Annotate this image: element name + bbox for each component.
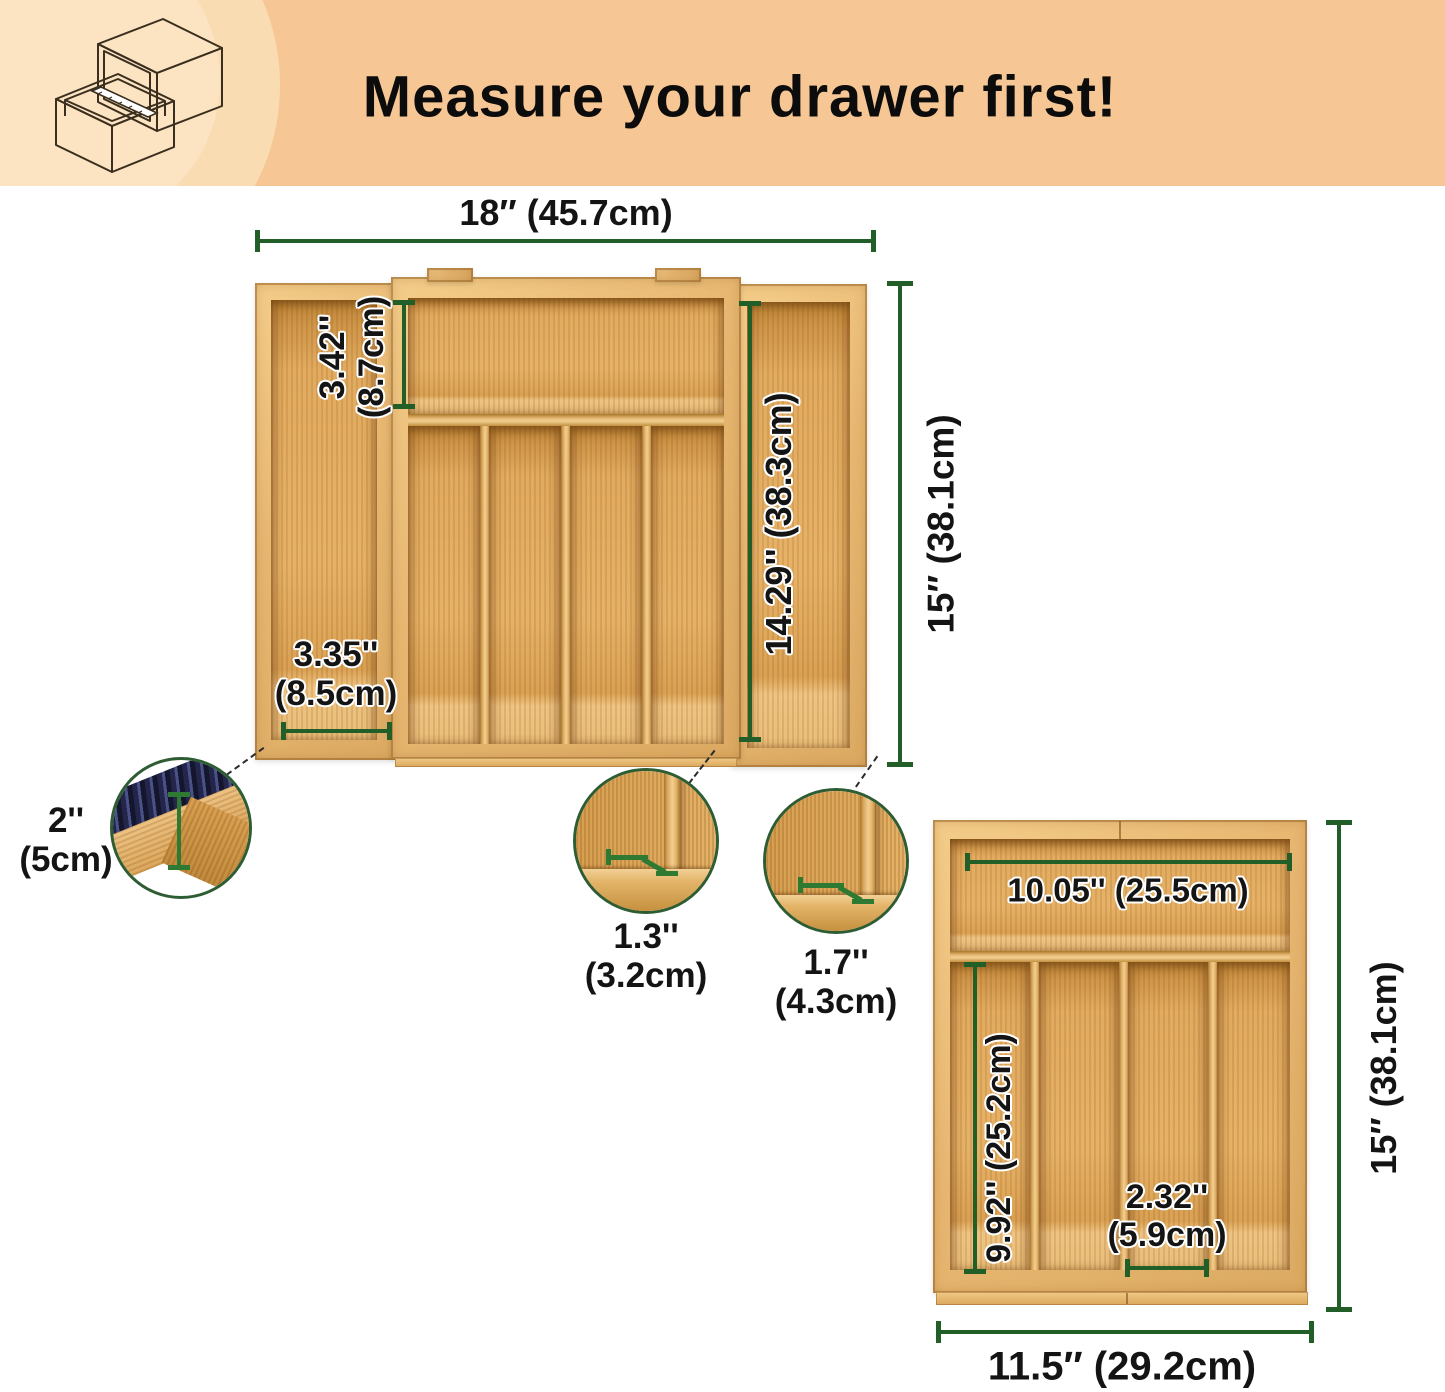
- large-base-ledge: [395, 758, 737, 767]
- small-bottom-width-label: 11.5″ (29.2cm): [988, 1345, 1256, 1390]
- open-drawer-icon: [36, 4, 251, 184]
- cm-value: (5cm): [19, 840, 112, 879]
- inch-value: 2.32'': [1107, 1178, 1226, 1216]
- small-column-width-label: 2.32'' (5.9cm): [1107, 1178, 1226, 1254]
- small-height-label: 15″ (38.1cm): [1364, 961, 1404, 1174]
- large-top-width-line: [257, 239, 874, 243]
- cm-value: (3.2cm): [585, 956, 708, 995]
- large-left-width-line: [283, 729, 390, 733]
- inch-value: 1.7'': [775, 943, 898, 982]
- inch-value: 1.3'': [585, 917, 708, 956]
- slot-width-marker: [798, 883, 844, 888]
- small-top-width-line: [967, 860, 1290, 864]
- large-column-3: [570, 426, 642, 744]
- slot-large-circle: [763, 788, 909, 934]
- cm-value: (8.7cm): [352, 296, 391, 419]
- small-column-length-label: 9.92'' (25.2cm): [980, 1033, 1018, 1263]
- large-top-compartment-height-line: [402, 302, 406, 407]
- slot-width-marker-cap: [798, 877, 803, 893]
- small-base-ledge: [936, 1292, 1308, 1305]
- cm-value: (8.5cm): [275, 674, 398, 713]
- slot-small-label: 1.3'' (3.2cm): [585, 917, 708, 995]
- small-column-length-line: [973, 964, 977, 1272]
- large-divider-2: [561, 426, 570, 744]
- depth-callout-circle: [110, 757, 252, 899]
- large-height-line: [898, 283, 902, 765]
- small-base-seam: [1126, 1293, 1128, 1304]
- small-horizontal-divider: [950, 951, 1290, 962]
- large-left-width-label: 3.35'' (8.5cm): [275, 635, 398, 713]
- slot-large-label: 1.7'' (4.3cm): [775, 943, 898, 1021]
- large-height-label: 15″ (38.1cm): [920, 414, 961, 633]
- infographic-canvas: Measure your drawer first! 18″ (45.7cm) …: [0, 0, 1445, 1392]
- small-bottom-width-line: [938, 1330, 1312, 1334]
- large-center-top-tab-left: [427, 268, 473, 282]
- header-banner: Measure your drawer first!: [0, 0, 1445, 186]
- inch-value: 3.35'': [275, 635, 398, 674]
- small-column-width-line: [1127, 1266, 1207, 1270]
- large-column-4: [651, 426, 724, 744]
- closeup-floor: [766, 895, 906, 931]
- large-center-top-tab-right: [655, 268, 701, 282]
- large-horizontal-divider: [408, 414, 724, 426]
- large-side-length-line: [748, 303, 752, 740]
- large-divider-1: [480, 426, 489, 744]
- small-column-4: [1217, 962, 1290, 1270]
- small-divider-1: [1030, 962, 1039, 1270]
- small-top-seam: [1119, 821, 1121, 839]
- large-column-1: [408, 426, 480, 744]
- depth-label: 2'' (5cm): [19, 801, 112, 879]
- small-top-width-label: 10.05'' (25.5cm): [1007, 873, 1248, 910]
- slot-width-marker-foot: [656, 871, 678, 876]
- large-top-compartment: [408, 298, 724, 414]
- slot-width-marker-foot: [852, 899, 874, 904]
- depth-line: [177, 794, 181, 868]
- large-column-2: [489, 426, 561, 744]
- small-height-line: [1337, 822, 1341, 1310]
- slot-small-circle: [573, 768, 719, 914]
- large-top-width-label: 18″ (45.7cm): [459, 193, 672, 233]
- large-side-length-label: 14.29'' (38.3cm): [759, 392, 799, 655]
- cm-value: (5.9cm): [1107, 1216, 1226, 1254]
- inch-value: 3.42'': [313, 296, 352, 419]
- slot-width-marker-cap: [606, 849, 611, 865]
- large-top-compartment-height-label: 3.42'' (8.7cm): [313, 296, 391, 419]
- large-divider-3: [642, 426, 651, 744]
- closeup-floor: [576, 869, 716, 911]
- page-title: Measure your drawer first!: [363, 64, 1117, 131]
- inch-value: 2'': [19, 801, 112, 840]
- cm-value: (4.3cm): [775, 982, 898, 1021]
